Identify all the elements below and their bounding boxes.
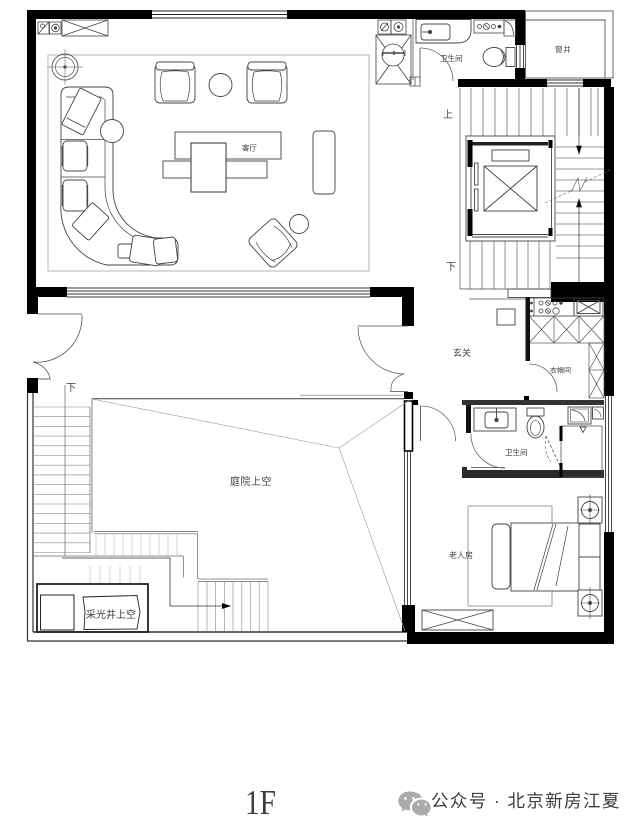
- svg-text:卫生间: 卫生间: [440, 53, 463, 63]
- svg-text:下: 下: [66, 383, 76, 394]
- svg-text:衣帽间: 衣帽间: [550, 366, 571, 375]
- svg-text:老人房: 老人房: [449, 550, 473, 560]
- svg-text:玄关: 玄关: [453, 347, 471, 358]
- svg-text:窗井: 窗井: [555, 44, 572, 54]
- svg-text:卫生间: 卫生间: [505, 447, 528, 457]
- svg-text:下: 下: [446, 262, 456, 273]
- svg-text:庭院上空: 庭院上空: [230, 475, 272, 488]
- svg-text:1F: 1F: [245, 783, 276, 822]
- svg-text:公众号 · 北京新房江夏: 公众号 · 北京新房江夏: [431, 791, 621, 811]
- svg-text:客厅: 客厅: [242, 143, 257, 153]
- svg-text:采光井上空: 采光井上空: [86, 608, 136, 621]
- svg-text:上: 上: [443, 109, 453, 121]
